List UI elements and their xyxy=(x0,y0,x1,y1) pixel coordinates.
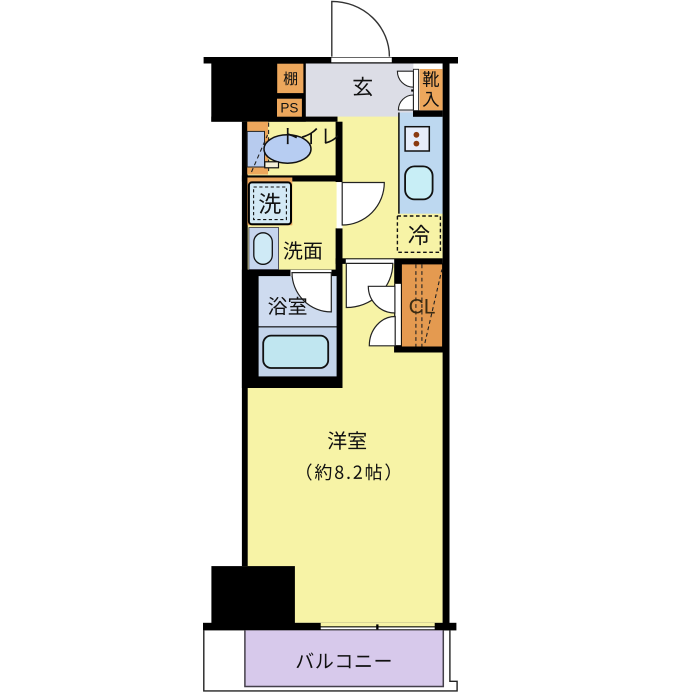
svg-text:CL: CL xyxy=(409,296,436,319)
svg-text:PS: PS xyxy=(280,101,298,116)
